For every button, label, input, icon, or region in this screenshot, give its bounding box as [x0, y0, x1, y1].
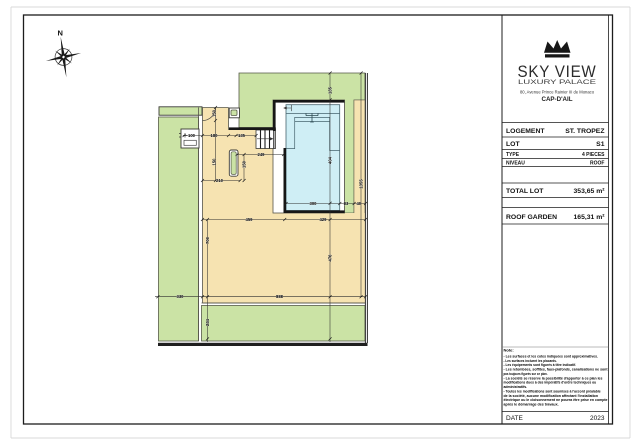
svg-text:DATE: DATE	[506, 415, 524, 422]
svg-text:330: 330	[177, 294, 185, 299]
svg-text:404: 404	[327, 156, 332, 164]
svg-text:150: 150	[211, 158, 216, 166]
svg-text:LUXURY PALACE: LUXURY PALACE	[518, 79, 596, 86]
svg-text:80, Avenue Prince Rainier III: 80, Avenue Prince Rainier III de Monaco	[520, 89, 595, 94]
svg-text:210: 210	[216, 178, 224, 183]
svg-text:S1: S1	[596, 141, 605, 148]
svg-text:LOGEMENT: LOGEMENT	[506, 128, 545, 135]
svg-text:40: 40	[356, 201, 361, 206]
svg-text:165,31 m²: 165,31 m²	[574, 214, 606, 221]
svg-text:4 PIECES: 4 PIECES	[582, 152, 605, 158]
svg-text:888: 888	[276, 294, 284, 299]
svg-text:150: 150	[211, 109, 216, 117]
svg-text:100: 100	[188, 133, 196, 138]
svg-text:Note:: Note:	[504, 348, 514, 353]
svg-text:ST. TROPEZ: ST. TROPEZ	[565, 128, 604, 135]
svg-text:2023: 2023	[590, 415, 605, 422]
svg-text:NIVEAU: NIVEAU	[506, 160, 525, 166]
svg-text:135: 135	[327, 86, 332, 94]
svg-text:476: 476	[327, 254, 332, 262]
svg-text:ROOF: ROOF	[590, 160, 604, 166]
svg-text:après le démarrage des travaux: après le démarrage des travaux.	[504, 402, 559, 407]
svg-text:459: 459	[246, 217, 254, 222]
svg-text:135: 135	[238, 133, 246, 138]
svg-text:ROOF GARDEN: ROOF GARDEN	[506, 214, 557, 221]
svg-text:TYPE: TYPE	[506, 152, 520, 158]
svg-text:N: N	[57, 29, 62, 38]
svg-text:300: 300	[310, 201, 318, 206]
svg-text:249: 249	[258, 152, 266, 157]
svg-text:180: 180	[211, 133, 219, 138]
svg-text:1355: 1355	[358, 179, 363, 189]
svg-text:429: 429	[320, 217, 328, 222]
svg-text:LOT: LOT	[506, 141, 520, 148]
svg-text:234: 234	[205, 318, 210, 326]
svg-text:353,65 m²: 353,65 m²	[574, 188, 606, 195]
svg-text:150: 150	[241, 160, 246, 168]
svg-text:TOTAL LOT: TOTAL LOT	[506, 188, 544, 195]
svg-text:700: 700	[205, 236, 210, 244]
svg-text:83: 83	[344, 201, 349, 206]
svg-text:CAP-D'AIL: CAP-D'AIL	[541, 96, 572, 103]
